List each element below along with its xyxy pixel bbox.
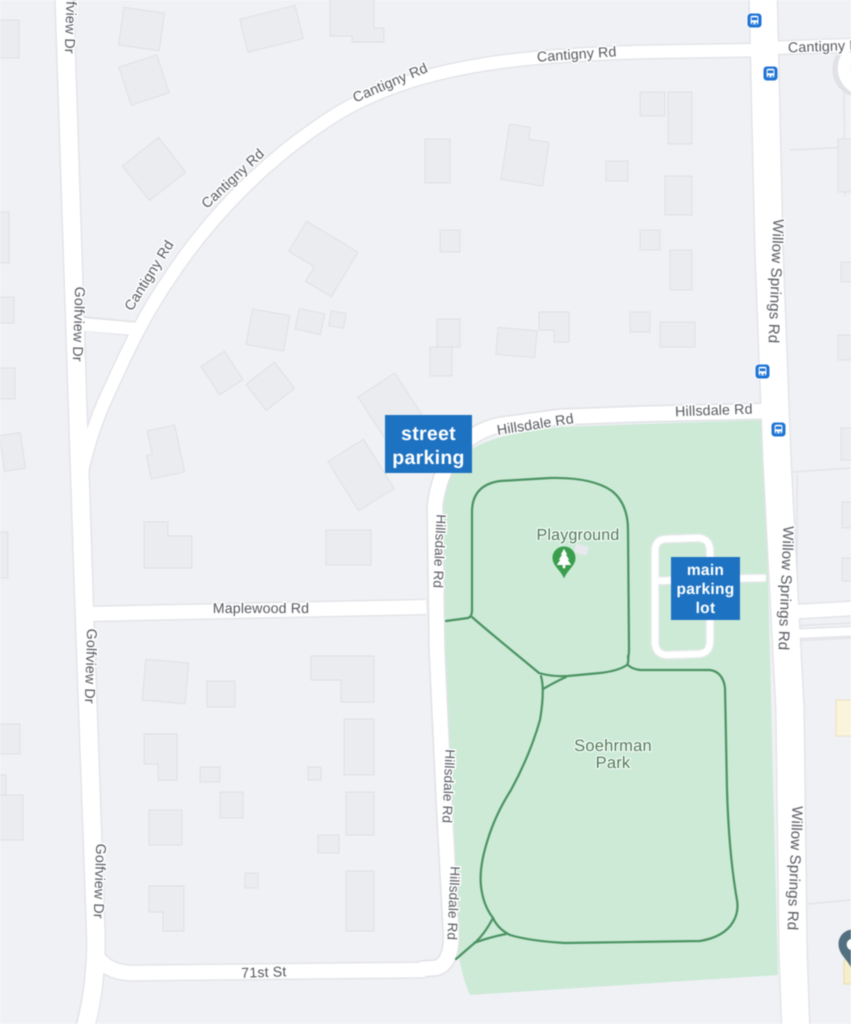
svg-text:Soehrman: Soehrman bbox=[574, 737, 652, 755]
svg-text:Hillsdale Rd: Hillsdale Rd bbox=[675, 402, 753, 421]
svg-text:main: main bbox=[687, 562, 724, 579]
svg-text:Golfview Dr: Golfview Dr bbox=[61, 0, 79, 54]
svg-text:Playground: Playground bbox=[537, 527, 620, 544]
svg-text:71st St: 71st St bbox=[241, 964, 287, 982]
svg-text:Park: Park bbox=[596, 754, 631, 772]
svg-text:parking: parking bbox=[676, 581, 734, 598]
svg-text:Golfview Dr: Golfview Dr bbox=[90, 843, 109, 919]
svg-text:street: street bbox=[401, 423, 456, 445]
svg-text:Cantigny Rd: Cantigny Rd bbox=[788, 38, 851, 57]
svg-text:Maplewood Rd: Maplewood Rd bbox=[213, 601, 309, 617]
svg-text:lot: lot bbox=[696, 600, 716, 617]
svg-text:parking: parking bbox=[392, 447, 465, 469]
svg-text:Golfview Dr: Golfview Dr bbox=[81, 628, 99, 704]
svg-text:Golfview Dr: Golfview Dr bbox=[69, 286, 87, 362]
